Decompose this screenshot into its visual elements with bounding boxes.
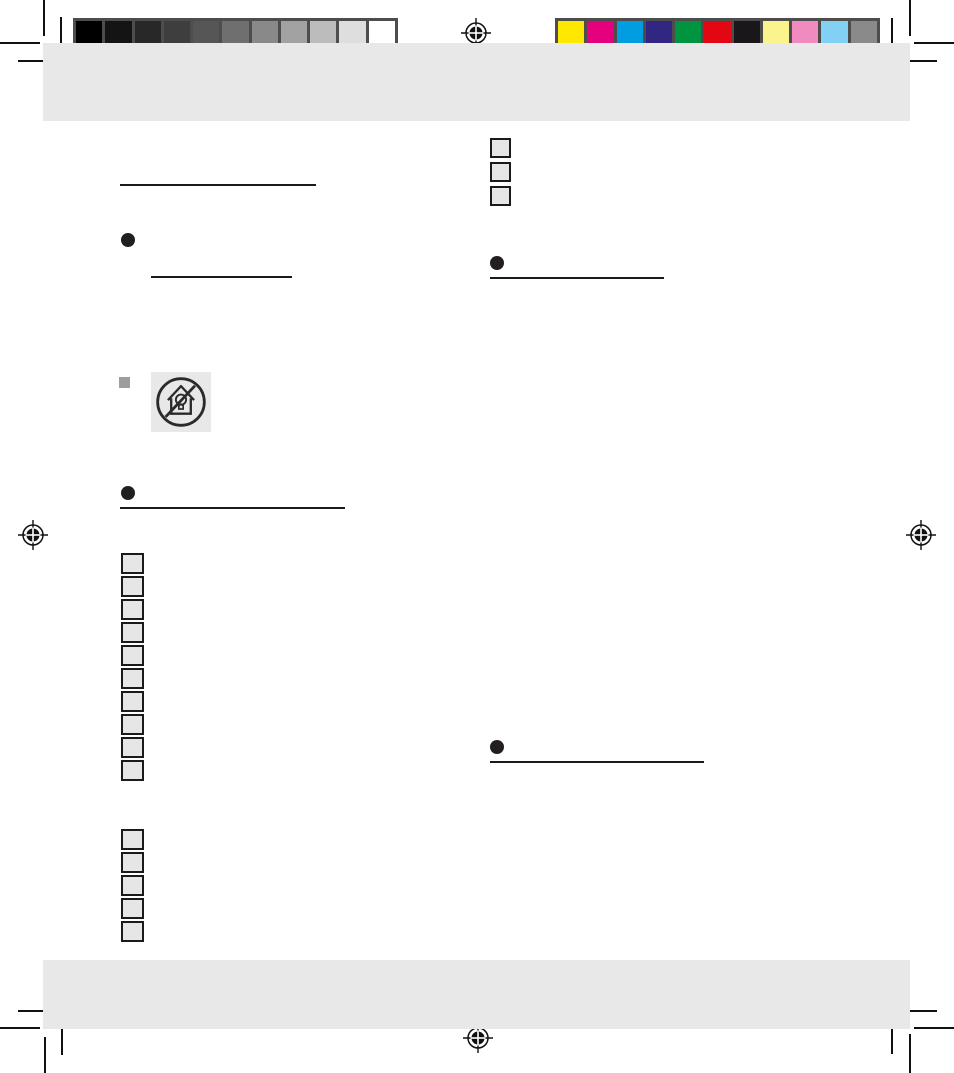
color-swatch <box>792 21 818 45</box>
grayscale-swatch <box>369 21 395 45</box>
grayscale-swatch <box>135 21 161 45</box>
crop-mark-line <box>43 0 45 36</box>
section-bullet <box>121 486 135 500</box>
no-household-illumination-icon <box>153 374 209 430</box>
registration-mark-icon <box>906 520 936 550</box>
section-bullet <box>490 256 504 270</box>
heading-rule <box>490 277 664 279</box>
legend-placeholder-box <box>121 898 144 919</box>
legend-placeholder-box <box>121 714 144 735</box>
color-swatch <box>587 21 613 45</box>
grayscale-swatch <box>339 21 365 45</box>
section-bullet <box>490 740 504 754</box>
legend-placeholder-box <box>490 162 511 182</box>
legend-placeholder-box <box>490 138 511 158</box>
color-swatch <box>675 21 701 45</box>
legend-placeholder-box <box>121 645 144 666</box>
crop-mark-line <box>0 1027 40 1029</box>
grayscale-swatch <box>193 21 219 45</box>
legend-placeholder-box <box>490 186 511 206</box>
legend-placeholder-box <box>121 599 144 620</box>
crop-mark-line <box>909 0 911 36</box>
grayscale-swatch <box>310 21 336 45</box>
legend-placeholder-box <box>121 622 144 643</box>
color-swatch <box>617 21 643 45</box>
header-band <box>43 43 910 121</box>
legend-placeholder-box <box>121 691 144 712</box>
legend-placeholder-box <box>121 760 144 781</box>
grayscale-swatch <box>222 21 248 45</box>
section-bullet <box>121 233 135 247</box>
color-swatch <box>763 21 789 45</box>
crop-mark-line <box>914 42 954 44</box>
color-swatch <box>821 21 847 45</box>
legend-placeholder-box <box>121 829 144 850</box>
grayscale-swatch <box>76 21 102 45</box>
print-proof-page <box>0 0 954 1073</box>
crop-mark-line <box>914 1027 954 1029</box>
heading-rule <box>151 276 292 278</box>
legend-box-list <box>121 553 144 783</box>
grayscale-swatch <box>164 21 190 45</box>
square-list-bullet <box>119 377 130 388</box>
legend-box-list <box>121 829 144 944</box>
grayscale-swatch <box>252 21 278 45</box>
legend-placeholder-box <box>121 875 144 896</box>
heading-rule <box>120 184 316 186</box>
crop-mark-line <box>909 1034 911 1073</box>
legend-box-list <box>490 138 511 210</box>
legend-placeholder-box <box>121 852 144 873</box>
crop-mark-line <box>44 1037 46 1073</box>
grayscale-swatch <box>105 21 131 45</box>
color-swatch <box>734 21 760 45</box>
footer-band <box>43 960 910 1029</box>
color-swatch <box>558 21 584 45</box>
color-swatch <box>704 21 730 45</box>
crop-mark-line <box>0 42 40 44</box>
registration-mark-icon <box>18 520 48 550</box>
safety-symbol-box <box>151 372 211 432</box>
color-swatch <box>646 21 672 45</box>
heading-rule <box>120 507 345 509</box>
legend-placeholder-box <box>121 576 144 597</box>
legend-placeholder-box <box>121 737 144 758</box>
grayscale-swatch <box>281 21 307 45</box>
legend-placeholder-box <box>121 668 144 689</box>
legend-placeholder-box <box>121 553 144 574</box>
legend-placeholder-box <box>121 921 144 942</box>
color-swatch <box>851 21 877 45</box>
heading-rule <box>490 761 704 763</box>
